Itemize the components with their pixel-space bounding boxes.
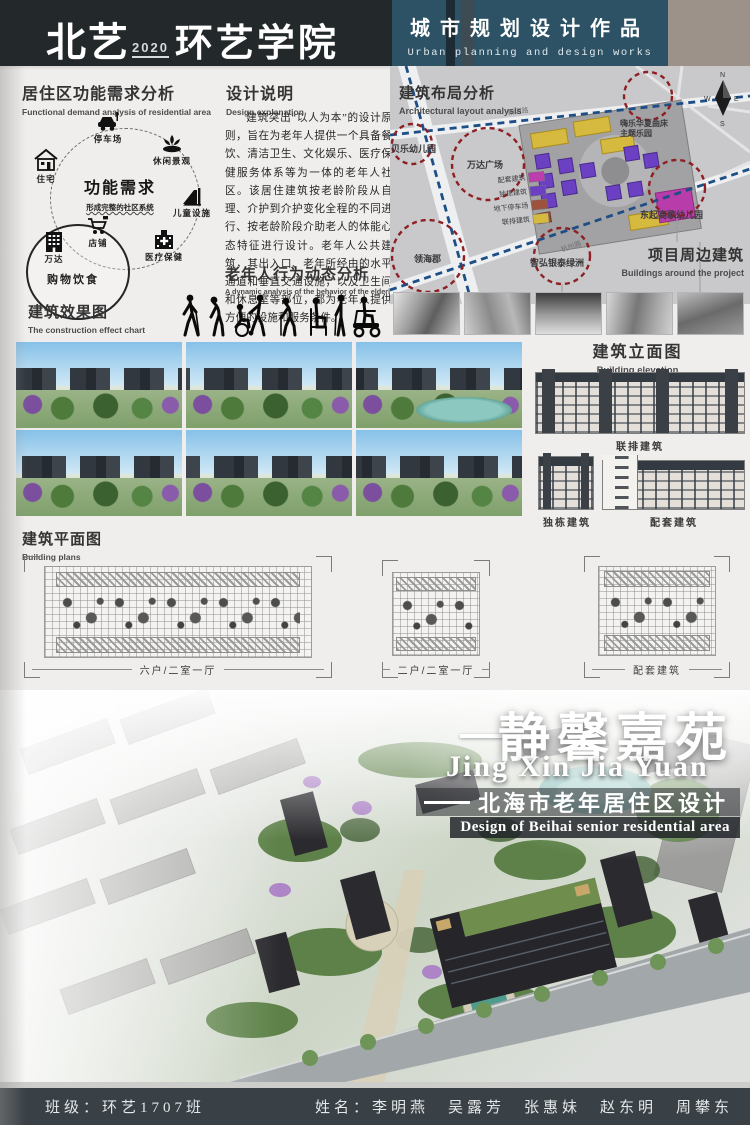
render-image-2 xyxy=(186,342,352,428)
elevation-support-label: 配套建筑 xyxy=(610,514,738,529)
header-tan-block xyxy=(668,0,750,66)
map-label-kindergarten-west: 贝乐幼儿园 xyxy=(391,143,436,154)
logo-main-text: 北艺 xyxy=(46,21,130,65)
legend-row: 联排建筑 xyxy=(488,213,550,229)
elevation-townhouse-drawing xyxy=(535,372,745,434)
legend-swatch-detached xyxy=(529,185,546,197)
house-icon xyxy=(33,148,59,172)
map-label-wanda-plaza: 万达广场 xyxy=(466,159,503,170)
map-label-theme-park-2: 主题乐园 xyxy=(620,128,652,138)
plan-drawing-1 xyxy=(44,566,312,658)
elevation-title-cn: 建筑立面图 xyxy=(530,338,745,362)
functional-center-subtitle: 形成完整的社区系统 xyxy=(68,202,172,213)
surroundings-heading: 项目周边建筑 Buildings around the project xyxy=(621,244,744,278)
legend-swatch-parking xyxy=(531,199,548,211)
elevation-heading: 建筑立面图 Building elevation xyxy=(530,338,745,376)
effect-title-cn: 建筑效果图 xyxy=(28,301,145,322)
lotus-icon xyxy=(161,134,183,154)
footer-class-info: 班级：环艺1707班 xyxy=(45,1096,205,1117)
slide-icon xyxy=(181,186,203,206)
poster: 北艺2020环艺学院 城市规划设计作品 Urban planning and d… xyxy=(0,0,750,1125)
node-residence: 住宅 xyxy=(20,148,72,185)
node-medical: 医疗保健 xyxy=(138,228,190,263)
legend-label-parking: 地下停车场 xyxy=(486,201,529,215)
map-label-yintai: 智弘银泰绿洲 xyxy=(530,257,584,268)
surroundings-photo xyxy=(393,292,460,335)
render-image-1 xyxy=(16,342,182,428)
surroundings-title-cn: 项目周边建筑 xyxy=(621,244,744,265)
plan-label-1: 六户/二室一厅 xyxy=(24,662,332,677)
footer-student-names: 姓名：李明燕 吴露芳 张惠妹 赵东明 周攀东 xyxy=(315,1096,733,1117)
plan-label-2: 二户/二室一厅 xyxy=(374,662,498,677)
render-image-5 xyxy=(186,430,352,516)
render-image-6 xyxy=(356,430,522,516)
elevation-detached-label: 独栋建筑 xyxy=(530,514,604,529)
logo-college-text: 环艺学院 xyxy=(175,23,339,65)
map-legend: 配套建筑 独栋建筑 地下停车场 联排建筑 xyxy=(483,171,550,233)
compass-s: S xyxy=(720,121,725,128)
layout-analysis-heading: 建筑布局分析 Architectural layout analysis xyxy=(399,82,522,116)
surroundings-photo xyxy=(606,292,673,335)
plan-label-2-text: 二户/二室一厅 xyxy=(398,662,475,677)
building-icon xyxy=(42,230,66,252)
node-parking: P 停车场 xyxy=(82,112,134,145)
plan-label-3-text: 配套建筑 xyxy=(633,662,681,677)
node-residence-label: 住宅 xyxy=(20,173,72,185)
elevation-townhouse-label: 联排建筑 xyxy=(535,438,745,453)
compass-n: N xyxy=(720,72,725,79)
plan-label-3: 配套建筑 xyxy=(584,662,730,677)
category-title-en: Urban planning and design works xyxy=(400,47,660,59)
plan-label-1-text: 六户/二室一厅 xyxy=(140,662,217,677)
elderly-silhouettes-illustration xyxy=(178,291,388,338)
effect-chart-heading: 建筑效果图 The construction effect chart xyxy=(28,301,145,335)
node-leisure: 休闲景观 xyxy=(146,134,198,167)
functional-center-title: 功能需求 xyxy=(68,174,172,198)
hospital-icon xyxy=(152,228,176,250)
logo-year-text: 2020 xyxy=(132,40,169,58)
surroundings-photo-strip xyxy=(393,292,747,335)
poster-category: 城市规划设计作品 Urban planning and design works xyxy=(400,12,660,59)
layout-title-cn: 建筑布局分析 xyxy=(399,82,522,103)
project-subtitle-en: Design of Beihai senior residential area xyxy=(450,817,740,838)
node-wanda-label: 万达 xyxy=(28,253,80,265)
node-dining: 购物饮食 xyxy=(38,270,108,287)
layout-analysis-map: N W E S 贝乐幼儿园 万达广场 领海郡 智弘银泰绿洲 东起高歌幼儿园 嗨乐… xyxy=(390,66,750,304)
legend-label-detached: 独栋建筑 xyxy=(485,187,528,201)
project-subtitle-cn: 北海市老年居住区设计 xyxy=(416,788,740,816)
node-children: 儿童设施 xyxy=(166,186,218,219)
surroundings-photo xyxy=(535,292,602,335)
map-label-kindergarten-east: 东起高歌幼儿园 xyxy=(640,209,703,220)
node-leisure-label: 休闲景观 xyxy=(146,155,198,167)
plans-title-cn: 建筑平面图 xyxy=(22,528,102,549)
node-parking-label: 停车场 xyxy=(82,133,134,145)
cart-icon xyxy=(87,216,109,236)
legend-swatch-townhouse xyxy=(532,213,549,225)
project-subtitle-cn-text: 北海市老年居住区设计 xyxy=(478,786,728,818)
compass-w: W xyxy=(704,96,711,103)
car-icon: P xyxy=(96,112,120,132)
header: 北艺2020环艺学院 城市规划设计作品 Urban planning and d… xyxy=(0,0,750,66)
surroundings-title-en: Buildings around the project xyxy=(621,268,744,278)
elderly-title-cn: 老年人行为动态分析 xyxy=(225,263,395,284)
render-image-3 xyxy=(356,342,522,428)
layout-title-en: Architectural layout analysis xyxy=(399,106,522,116)
effect-title-en: The construction effect chart xyxy=(28,325,145,335)
render-image-4 xyxy=(16,430,182,516)
legend-label-townhouse: 联排建筑 xyxy=(488,215,531,229)
project-subtitle-en-text: Design of Beihai senior residential area xyxy=(460,819,730,836)
project-title-pinyin: Jing Xin Jia Yuan xyxy=(446,750,709,784)
node-wanda: 万达 xyxy=(28,230,80,265)
functional-diagram: P 停车场 休闲景观 儿童设施 医疗保健 店铺 万达 购物饮食 住 xyxy=(20,112,220,307)
school-logo: 北艺2020环艺学院 xyxy=(46,10,339,68)
map-label-theme-park-1: 嗨乐华夏曲床 xyxy=(620,118,669,128)
svg-text:P: P xyxy=(115,113,119,119)
node-dining-label: 购物饮食 xyxy=(38,271,108,287)
design-title-cn: 设计说明 xyxy=(226,80,392,104)
surroundings-photo xyxy=(464,292,531,335)
plan-drawing-2 xyxy=(392,572,480,656)
legend-swatch-support xyxy=(528,171,545,183)
node-children-label: 儿童设施 xyxy=(166,207,218,219)
functional-center: 功能需求 形成完整的社区系统 xyxy=(68,174,172,213)
compass-e: E xyxy=(734,96,739,103)
map-label-linghaijun: 领海郡 xyxy=(414,253,441,264)
elevation-detached-drawing xyxy=(538,456,594,510)
footer: 班级：环艺1707班 姓名：李明燕 吴露芳 张惠妹 赵东明 周攀东 xyxy=(0,1088,750,1125)
elevation-support-drawing xyxy=(602,460,745,510)
functional-title-cn: 居住区功能需求分析 xyxy=(22,80,222,104)
node-medical-label: 医疗保健 xyxy=(138,251,190,263)
surroundings-photo xyxy=(677,292,744,335)
category-title-cn: 城市规划设计作品 xyxy=(400,12,660,41)
plan-drawing-3 xyxy=(598,566,716,656)
